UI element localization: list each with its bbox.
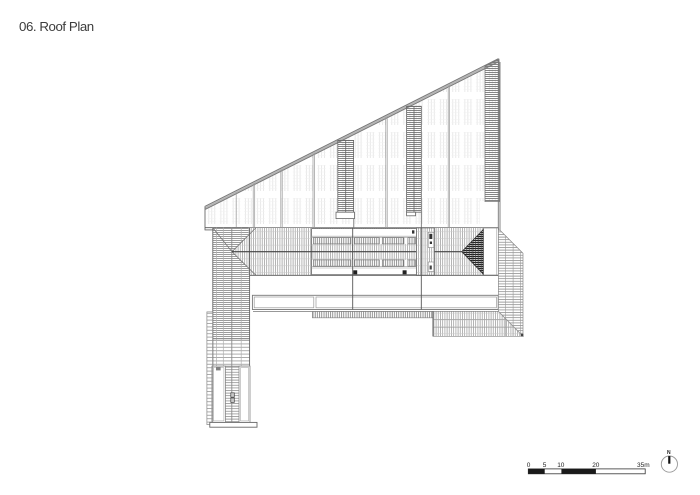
svg-text:35m: 35m [637, 462, 650, 469]
svg-text:0: 0 [527, 462, 531, 469]
svg-text:5: 5 [543, 462, 547, 469]
svg-text:20: 20 [592, 462, 600, 469]
svg-text:N: N [667, 450, 671, 456]
svg-text:10: 10 [557, 462, 565, 469]
